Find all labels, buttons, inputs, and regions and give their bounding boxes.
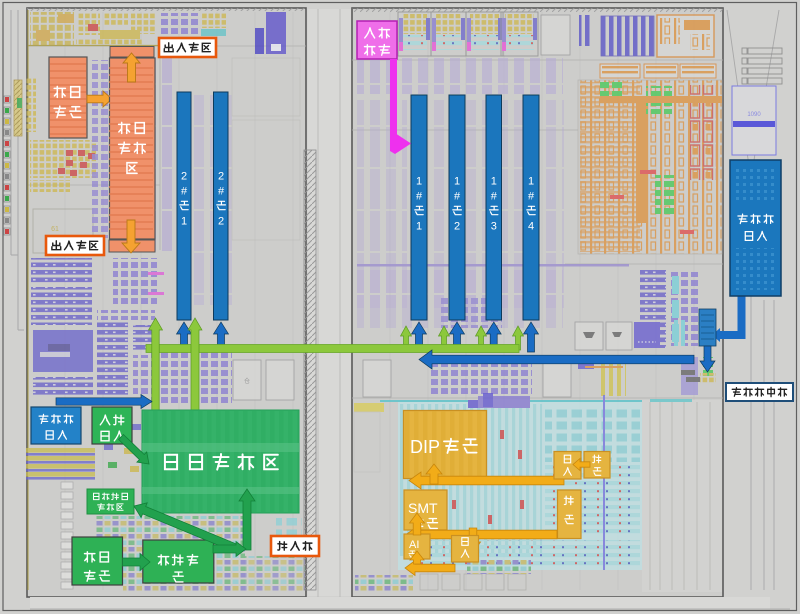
svg-text:仓: 仓 [244,377,250,385]
svg-text:1: 1 [491,176,497,188]
svg-text:#: # [218,186,225,198]
svg-text:#: # [416,191,423,203]
svg-text:#: # [181,186,188,198]
svg-text:1: 1 [454,176,460,188]
svg-text:4: 4 [528,221,534,233]
svg-text:2: 2 [218,216,224,228]
svg-text:1: 1 [416,221,422,233]
svg-text:#: # [528,191,535,203]
svg-text:3: 3 [491,221,497,233]
svg-text:SMT: SMT [408,500,438,516]
svg-text:#: # [454,191,461,203]
svg-text:61: 61 [51,226,59,233]
svg-text:DIP: DIP [410,437,440,457]
svg-text:1090: 1090 [747,112,761,118]
svg-text:AI: AI [409,539,419,551]
svg-text:#: # [491,191,498,203]
svg-text:1: 1 [416,176,422,188]
svg-text:2: 2 [454,221,460,233]
svg-text:2: 2 [181,171,187,183]
svg-text:1: 1 [528,176,534,188]
svg-text:1: 1 [181,216,187,228]
svg-text:2: 2 [218,171,224,183]
